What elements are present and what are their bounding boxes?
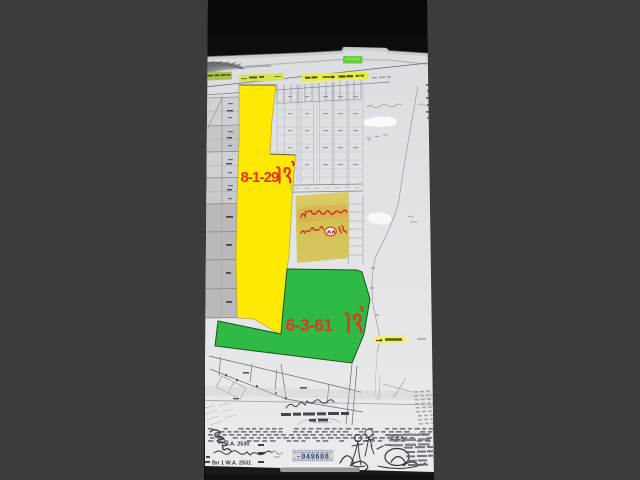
svg-text:6-3-61: 6-3-61 [286,315,334,335]
svg-text:1 J.A. 2530: 1 J.A. 2530 [221,442,249,448]
svg-text:2 J.A.: 2 J.A. [391,436,406,442]
svg-text:8-1-29: 8-1-29 [241,169,280,186]
svg-text:-049608: -049608 [297,454,330,462]
svg-text:Bn 1 W.A. 2531: Bn 1 W.A. 2531 [212,461,251,467]
